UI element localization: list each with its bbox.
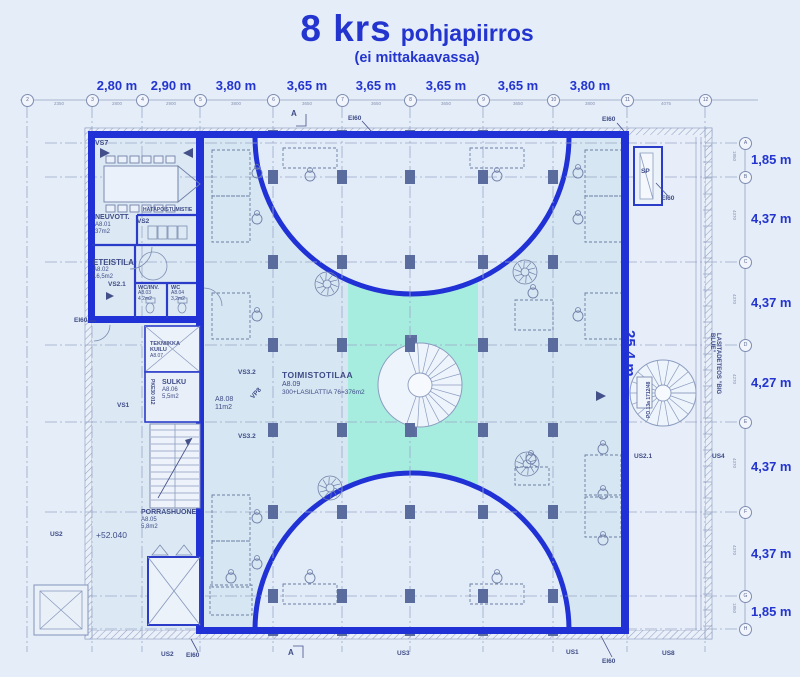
dimension-top-6: 3,65 m (488, 78, 548, 93)
room-label-a808: A8.08 11m2 (215, 396, 233, 412)
door-code-po13a: PO.13a 1712/48 (646, 382, 652, 418)
dimension-top-mm-8: 3800 (573, 101, 607, 106)
dimension-right-mm-5: 4370 (732, 545, 737, 555)
elevator (148, 545, 200, 625)
grid-bubble-top-1: 3 (86, 94, 99, 107)
dimension-top-2: 3,80 m (206, 78, 266, 93)
dimension-right-0: 1,85 m (751, 152, 791, 167)
room-label-neuvottelu: NEUVOTT. A8.01 37m2 (95, 214, 130, 236)
grid-bubble-top-9: 11 (621, 94, 634, 107)
dimension-right-6: 1,85 m (751, 604, 791, 619)
dimension-top-5: 3,65 m (416, 78, 476, 93)
balcony (34, 585, 88, 635)
room-label-wcinv: WC/INV. A8.03 4,2m2 (138, 285, 159, 303)
room-label-wc: WC A8.04 3,2m2 (171, 285, 185, 303)
dimension-right-5: 4,37 m (751, 546, 791, 561)
total-height-dim: 25,4 m (621, 330, 638, 377)
grid-bubble-top-8: 10 (547, 94, 560, 107)
wall-tag-us8: US8 (662, 650, 675, 657)
dimension-top-mm-3: 3800 (219, 101, 253, 106)
dimension-right-mm-4: 4370 (732, 458, 737, 468)
title-name: pohjapiirros (401, 20, 534, 47)
dimension-top-7: 3,80 m (560, 78, 620, 93)
wall-tag-us2-bottom: US2 (161, 651, 174, 658)
dimension-right-mm-1: 4370 (732, 210, 737, 220)
grid-bubble-top-6: 8 (404, 94, 417, 107)
emergency-exit-label: HÄTÄPOISTUMISTIE (143, 207, 192, 213)
dimension-right-3: 4,27 m (751, 375, 791, 390)
fire-tag-ei60-left: EI60 (74, 317, 87, 324)
wall-tag-us1: US1 (566, 649, 579, 656)
wall-tag-us2-left: US2 (50, 531, 63, 538)
grid-bubble-top-10: 12 (699, 94, 712, 107)
fire-tag-ei60-top-right: EI60 (602, 116, 615, 123)
floorplan-canvas: 8 krs pohjapiirros (ei mittakaavassa) 23… (0, 0, 800, 677)
dimension-top-mm-2: 2900 (154, 101, 188, 106)
grid-bubble-top-2: 4 (136, 94, 149, 107)
dimension-top-mm-1: 2800 (100, 101, 134, 106)
dimension-right-1: 4,37 m (751, 211, 791, 226)
grid-bubble-top-3: 5 (194, 94, 207, 107)
room-label-tekniikka: TEKNIIKKA KUILU A8.07 (150, 341, 180, 359)
room-label-porrashuone: PORRASHUONE A8.05 5,8m2 (141, 509, 196, 531)
title-floor: 8 krs (300, 8, 391, 50)
wall-tag-us21: US2.1 (634, 453, 652, 460)
title-note: (ei mittakaavassa) (300, 50, 533, 66)
wall-tag-vs21: VS2.1 (108, 281, 126, 288)
level-annotation: +52.040 (96, 530, 127, 540)
dimension-top-0: 2,80 m (87, 78, 147, 93)
wall-tag-us3: US3 (397, 650, 410, 657)
fire-tag-ei60-bottom-right: EI60 (602, 658, 615, 665)
dimension-top-mm-9: 4075 (649, 101, 683, 106)
wall-tag-vs2: VS2 (137, 218, 149, 225)
grid-bubble-right-7: H (739, 623, 752, 636)
wall-tag-vs32-b: VS3.2 (238, 433, 256, 440)
fire-tag-ei60-sp: EI60 (661, 195, 674, 202)
grid-bubble-top-4: 6 (267, 94, 280, 107)
grid-bubble-right-1: B (739, 171, 752, 184)
grid-bubble-right-6: G (739, 590, 752, 603)
wall-tag-us4: US4 (712, 453, 725, 460)
room-label-toimisto: TOIMISTOTILAA A8.09 300+LASILATTIA 76=37… (282, 371, 365, 396)
dimension-top-mm-6: 3650 (429, 101, 463, 106)
dimension-top-4: 3,65 m (346, 78, 406, 93)
dimension-top-mm-0: 2350 (42, 101, 76, 106)
dimension-top-3: 3,65 m (277, 78, 337, 93)
dimension-right-4: 4,37 m (751, 459, 791, 474)
shaft-tag-sp: SP (641, 168, 650, 175)
dimension-top-1: 2,90 m (141, 78, 201, 93)
wall-tag-vs1: VS1 (117, 402, 129, 409)
dimension-top-mm-7: 3650 (501, 101, 535, 106)
dimension-top-mm-5: 3650 (359, 101, 393, 106)
dimension-right-2: 4,37 m (751, 295, 791, 310)
section-label-a-top: A (291, 109, 297, 118)
grid-bubble-right-2: C (739, 256, 752, 269)
section-label-a-bottom: A (288, 648, 294, 657)
dimension-right-mm-2: 4370 (732, 294, 737, 304)
fire-tag-ei60-top-left: EI60 (348, 115, 361, 122)
stairwell (150, 424, 200, 508)
fire-tag-ei60-bottom-left: EI60 (186, 652, 199, 659)
grid-bubble-right-5: F (739, 506, 752, 519)
room-label-eteistila: ETEISTILA A8.02 16,5m2 (93, 258, 134, 281)
grid-bubble-right-0: A (739, 137, 752, 150)
dimension-top-mm-4: 3650 (290, 101, 324, 106)
central-spiral-stair (378, 343, 462, 427)
wall-tag-vs7: VS7 (95, 140, 108, 148)
grid-bubble-top-7: 9 (477, 94, 490, 107)
facade-label: LASITADETEOS ”BIG BLUE” (709, 333, 721, 412)
room-label-sulku: SULKU A8.06 5,5m2 (162, 379, 186, 401)
dimension-right-mm-6: 1850 (732, 603, 737, 613)
grid-bubble-right-4: E (739, 416, 752, 429)
door-code-pke30: PKE30 012 (149, 379, 155, 405)
grid-bubble-right-3: D (739, 339, 752, 352)
drawing-title: 8 krs pohjapiirros (ei mittakaavassa) (300, 8, 533, 66)
sp-shaft (634, 147, 662, 205)
grid-bubble-top-5: 7 (336, 94, 349, 107)
grid-bubble-top-0: 2 (21, 94, 34, 107)
dimension-right-mm-3: 4270 (732, 374, 737, 384)
wall-tag-vs32-a: VS3.2 (238, 369, 256, 376)
dimension-right-mm-0: 1850 (732, 151, 737, 161)
